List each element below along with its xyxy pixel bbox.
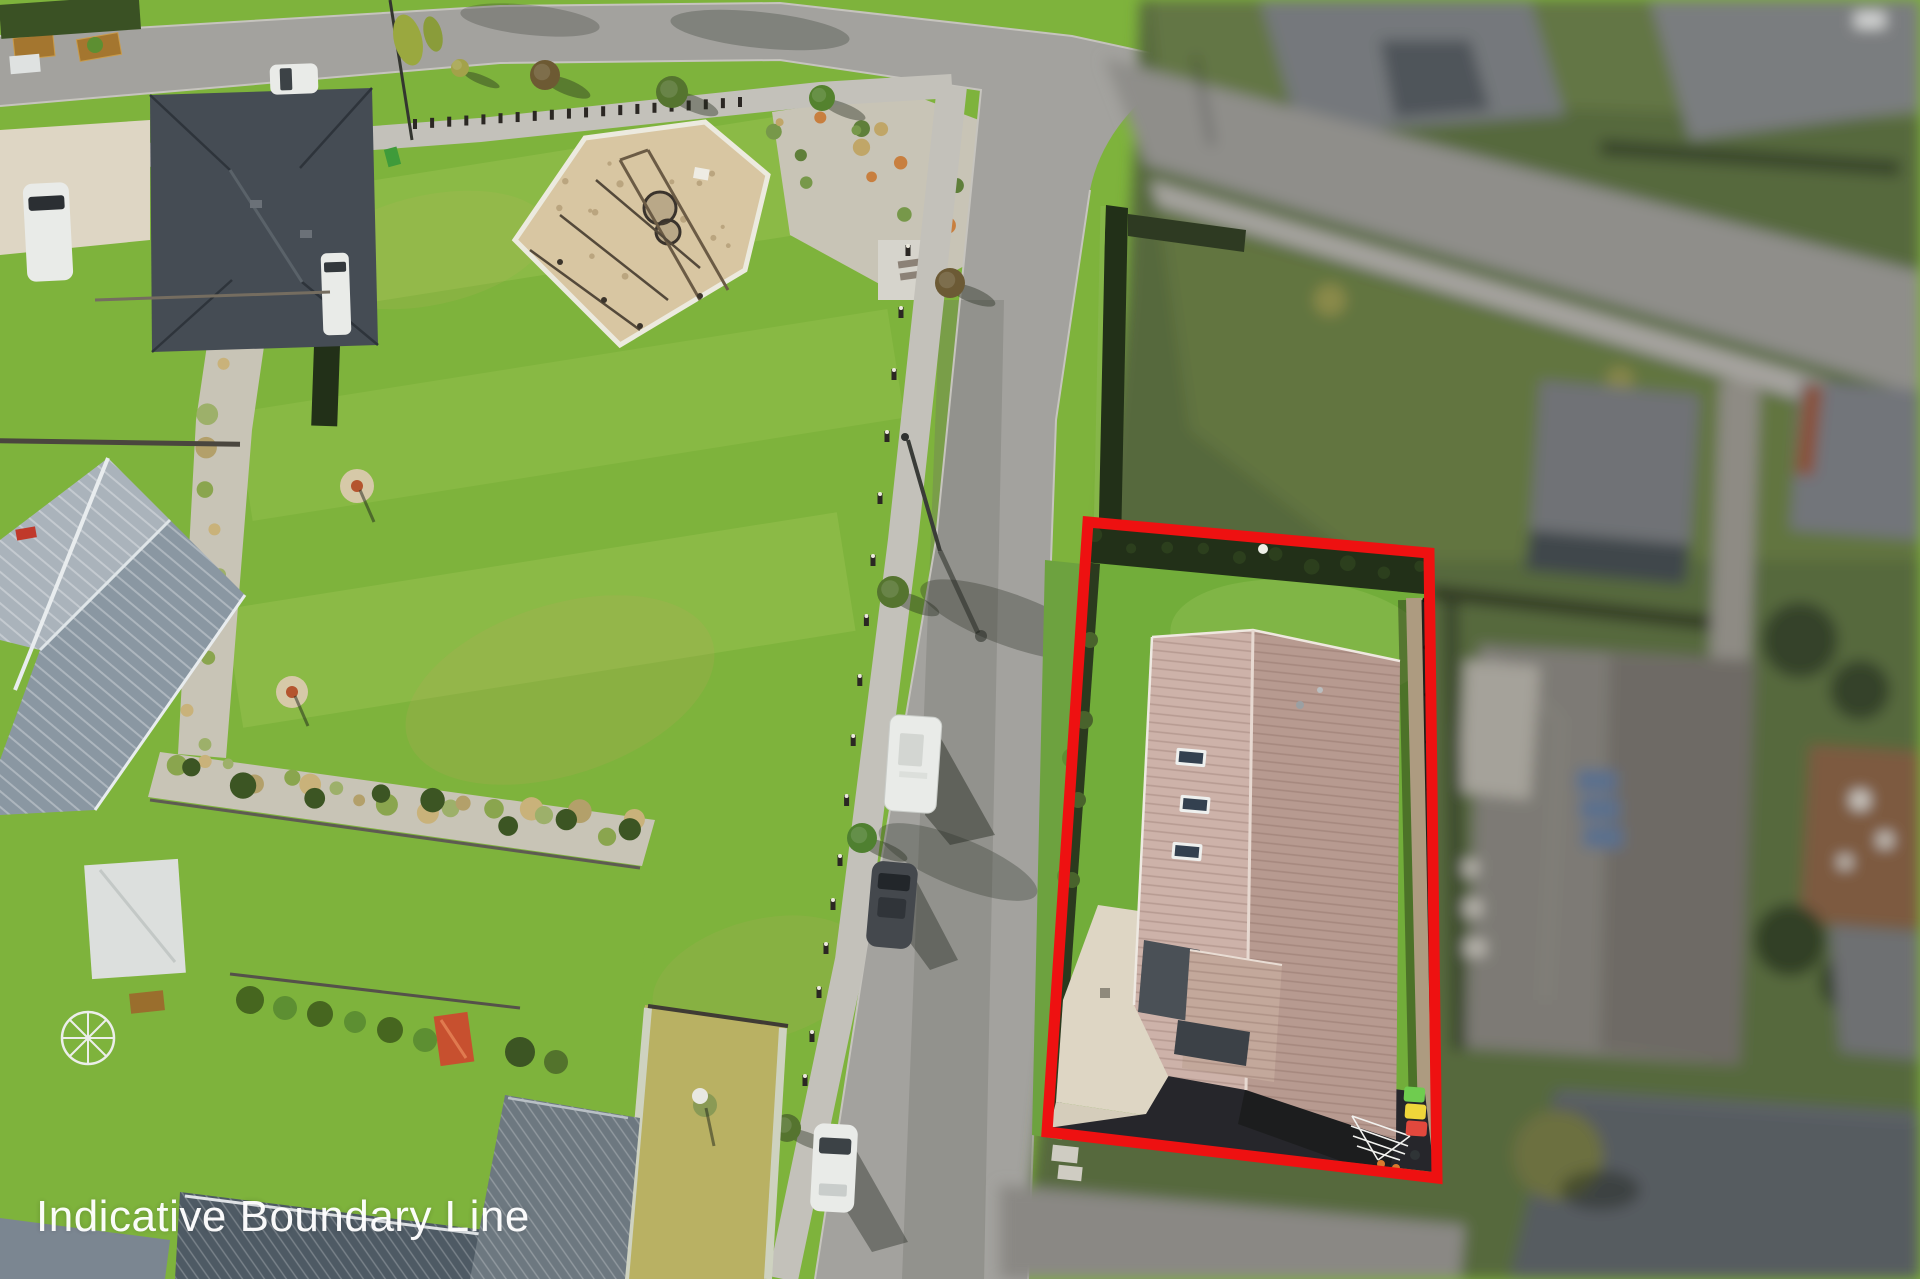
bin-red: [1405, 1120, 1427, 1136]
skylight: [1175, 748, 1206, 768]
road-car: [269, 63, 318, 95]
driveway: [0, 120, 150, 255]
white-car: [810, 1123, 859, 1213]
skylight: [1179, 795, 1210, 815]
white-garden-feature: [1258, 544, 1268, 554]
shed-roof: [84, 859, 186, 979]
boundary-caption: Indicative Boundary Line: [36, 1192, 530, 1242]
skylight: [1171, 842, 1202, 862]
aerial-photo: Indicative Boundary Line: [0, 0, 1920, 1279]
garden-planter: [129, 990, 165, 1013]
street-light-lamp: [901, 433, 909, 441]
subject-property: [1040, 515, 1450, 1190]
aerial-scene: [0, 0, 1920, 1279]
bin-yellow: [1404, 1103, 1426, 1119]
bin-green: [1403, 1086, 1425, 1102]
